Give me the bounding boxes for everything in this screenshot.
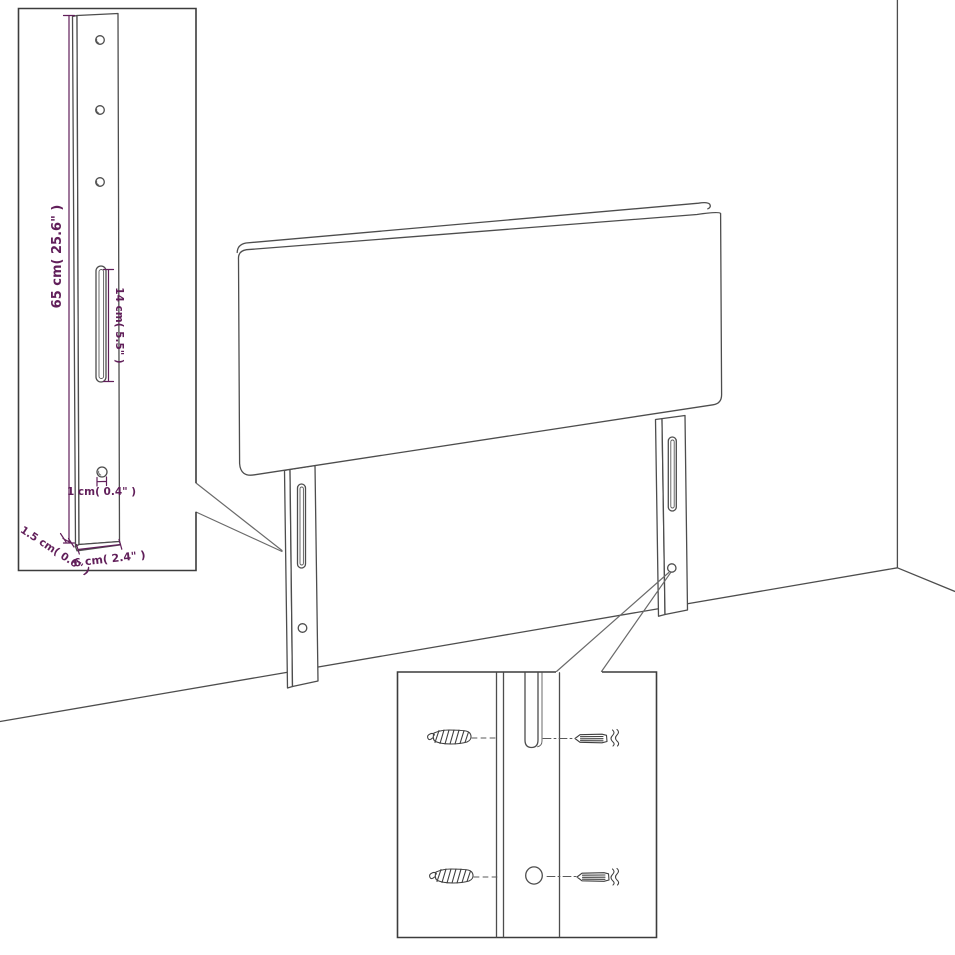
mounting-inset-background — [398, 672, 657, 938]
mounting-detail-inset — [398, 573, 671, 938]
leg-detail-drawing — [73, 14, 121, 551]
product-dimension-image: 65 cm( 25.6" ) 14 cm( 5.5" ) 1 cm( 0.4" … — [0, 0, 955, 955]
mounting-callout-line-left — [557, 573, 669, 672]
headboard-front-face — [238, 213, 721, 476]
dim-slot-length-label: 14 cm( 5.5" ) — [113, 287, 125, 363]
left-leg — [285, 466, 319, 689]
headboard-dimension-diagram: 65 cm( 25.6" ) 14 cm( 5.5" ) 1 cm( 0.4" … — [0, 0, 955, 955]
left-leg-front-face — [290, 466, 318, 687]
floor-line-right — [897, 568, 955, 592]
right-leg — [656, 416, 688, 617]
leg-detail-callout-line-upper — [196, 483, 282, 551]
dim-leg-height-label: 65 cm( 25.6" ) — [50, 205, 65, 309]
leg-detail-callout-line-lower — [196, 512, 282, 552]
right-leg-front-face — [662, 416, 688, 615]
detail-leg-front-face — [77, 14, 120, 545]
headboard-panel — [237, 203, 721, 476]
dim-hole-diameter-label: 1 cm( 0.4" ) — [67, 486, 136, 498]
